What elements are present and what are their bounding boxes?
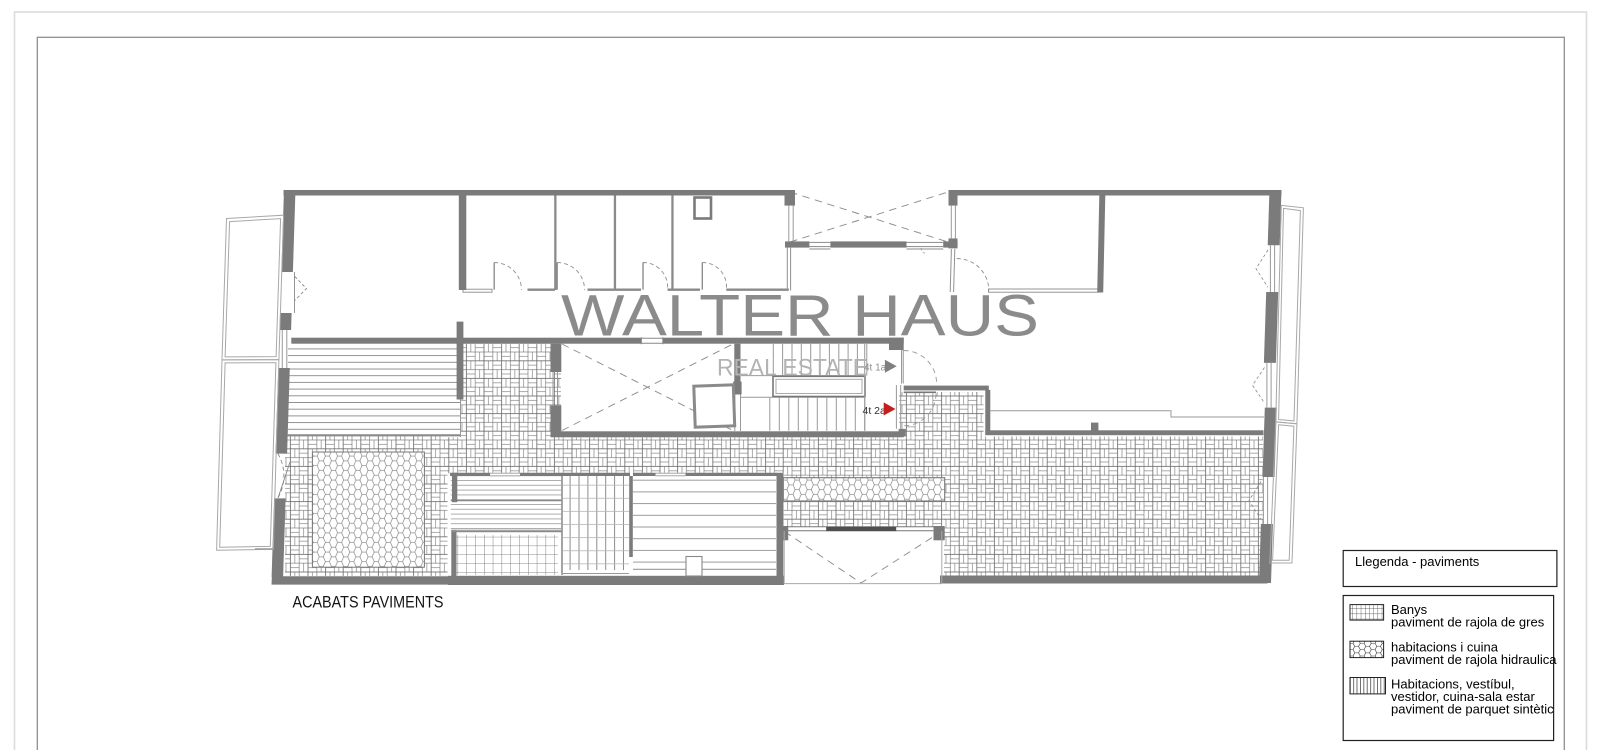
svg-text:Llegenda - paviments: Llegenda - paviments bbox=[1355, 554, 1480, 569]
svg-text:paviment de rajola hidraulica: paviment de rajola hidraulica bbox=[1391, 652, 1557, 667]
svg-text:REAL ESTATE: REAL ESTATE bbox=[717, 355, 868, 382]
svg-text:4t 2a: 4t 2a bbox=[863, 405, 887, 417]
svg-text:paviment de rajola de gres: paviment de rajola de gres bbox=[1391, 615, 1545, 630]
svg-text:WALTER HAUS: WALTER HAUS bbox=[561, 283, 1039, 348]
svg-text:4t 1a: 4t 1a bbox=[864, 363, 887, 374]
svg-text:paviment de parquet sintètic: paviment de parquet sintètic bbox=[1391, 701, 1554, 716]
svg-text:ACABATS PAVIMENTS: ACABATS PAVIMENTS bbox=[293, 594, 444, 612]
